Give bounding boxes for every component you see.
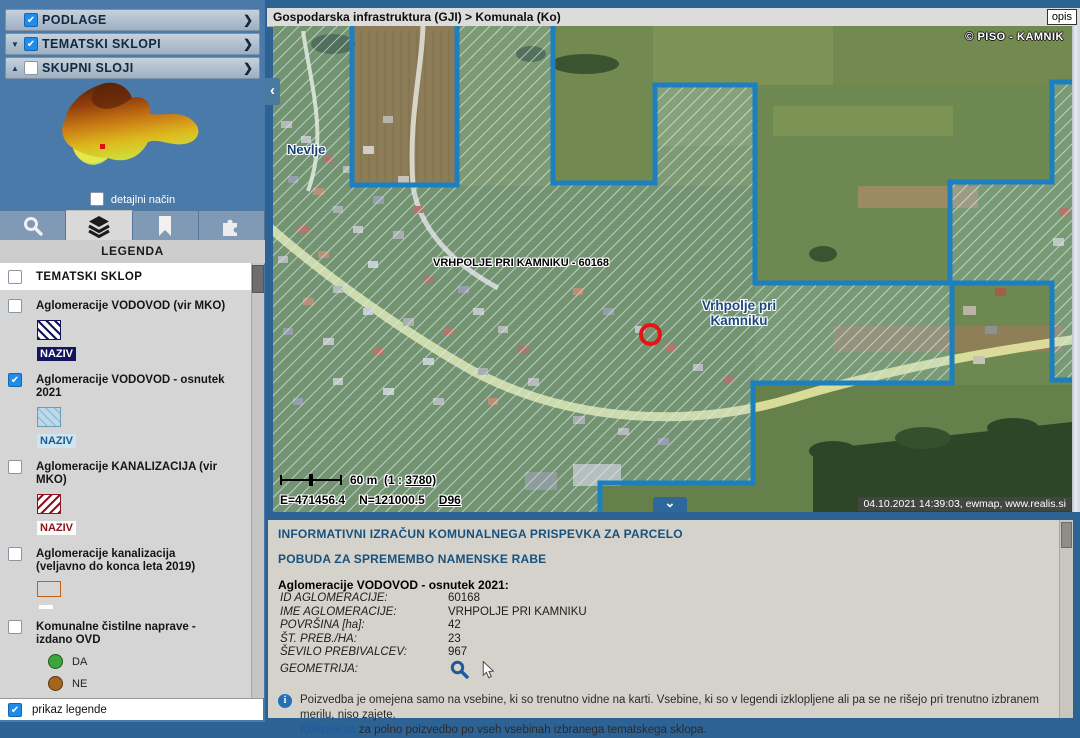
selection-marker-icon: [639, 323, 662, 346]
check-icon: ✔: [27, 15, 35, 26]
sidebar-collapse-tab[interactable]: ‹: [265, 78, 280, 105]
link-komunalni-prispevek[interactable]: INFORMATIVNI IZRAČUN KOMUNALNEGA PRISPEV…: [278, 527, 1048, 541]
tab-search[interactable]: [0, 210, 66, 240]
dot-label: DA: [72, 656, 87, 668]
check-icon: ✔: [11, 705, 19, 716]
panel-bar-podlage[interactable]: ✔ PODLAGE ❯: [5, 9, 260, 31]
chevron-right-icon: ❯: [243, 13, 253, 27]
tool-tabs: [0, 210, 265, 240]
field-label: GEOMETRIJA:: [278, 663, 450, 677]
legend-item-kanalizacija-2019: Aglomeracije kanalizacija (veljavno do k…: [0, 538, 251, 611]
field-row-geometry: GEOMETRIJA:: [278, 660, 1048, 680]
collapse-triangle-icon[interactable]: ▲: [6, 64, 24, 73]
naziv-badge: NAZIV: [37, 521, 76, 535]
chevron-down-icon: ⌄: [665, 495, 676, 510]
panel-bar-label: TEMATSKI SKLOPI: [42, 37, 243, 51]
tematski-checkbox[interactable]: ✔: [24, 37, 38, 51]
field-row: ŠEVILO PREBIVALCEV:967: [278, 646, 1048, 660]
legend-items: Aglomeracije VODOVOD (vir MKO) NAZIV ✔ A…: [0, 290, 251, 698]
note-tail: za polno poizvedbo po vseh vsebinah izbr…: [356, 724, 707, 736]
panel-collapse-tab[interactable]: ⌄: [653, 497, 687, 512]
chevron-right-icon: ❯: [243, 37, 253, 51]
tab-tools[interactable]: [199, 210, 265, 240]
field-row: ID AGLOMERACIJE:60168: [278, 592, 1048, 606]
item-checkbox[interactable]: [8, 547, 22, 561]
show-legend-checkbox[interactable]: ✔: [8, 703, 22, 717]
bookmark-icon: [155, 215, 175, 237]
group-label: TEMATSKI SKLOP: [36, 271, 142, 283]
place-line1: Vrhpolje pri: [679, 298, 799, 313]
place-line2: Kamniku: [679, 313, 799, 328]
overview-marker: [100, 144, 105, 149]
coordinate-readout: E=471456.4N=121000.5D96: [280, 493, 475, 507]
field-row: ŠT. PREB./HA:23: [278, 633, 1048, 647]
overview-map[interactable]: [40, 78, 225, 190]
field-value: 967: [448, 646, 467, 658]
item-label: Komunalne čistilne naprave - izdano OVD: [36, 620, 226, 647]
lightblue-swatch: [37, 407, 61, 427]
field-value: VRHPOLJE PRI KAMNIKU: [448, 606, 587, 618]
field-label: ŠEVILO PREBIVALCEV:: [278, 646, 448, 660]
map-label-nevlje: Nevlje: [287, 142, 325, 157]
legend-footer: ✔ prikaz legende: [0, 698, 263, 720]
legend-scrollbar-track[interactable]: [251, 263, 264, 698]
white-dash-swatch: [39, 605, 53, 609]
status-ne-row: NE: [39, 676, 245, 691]
field-row: POVRŠINA [ha]:42: [278, 619, 1048, 633]
item-checkbox[interactable]: [8, 460, 22, 474]
tab-layers[interactable]: [66, 210, 132, 240]
results-panel: INFORMATIVNI IZRAČUN KOMUNALNEGA PRISPEV…: [268, 520, 1072, 718]
breadcrumb: Gospodarska infrastruktura (GJI) > Komun…: [273, 10, 561, 24]
coord-e: E=471456.4: [280, 493, 345, 507]
map-label-aggregation: VRHPOLJE PRI KAMNIKU - 60168: [433, 257, 609, 269]
map-header-bar: Gospodarska infrastruktura (GJI) > Komun…: [267, 8, 1080, 27]
item-checkbox[interactable]: [8, 620, 22, 634]
podlage-checkbox[interactable]: ✔: [24, 13, 38, 27]
search-icon: [22, 215, 44, 237]
panel-scrollbar-track[interactable]: [1059, 520, 1073, 718]
legend-item-vodovod-mko: Aglomeracije VODOVOD (vir MKO) NAZIV: [0, 290, 251, 364]
field-label: POVRŠINA [ha]:: [278, 619, 448, 633]
skupni-checkbox[interactable]: [24, 61, 38, 75]
legend-item-kanalizacija-mko: Aglomeracije KANALIZACIJA (vir MKO) NAZI…: [0, 451, 251, 538]
note-text: Poizvedba je omejena samo na vsebine, ki…: [300, 694, 1039, 721]
note-link[interactable]: Kliknite tu: [300, 724, 356, 736]
item-label: Aglomeracije VODOVOD - osnutek 2021: [36, 373, 226, 400]
tab-bookmarks[interactable]: [133, 210, 199, 240]
field-label: ID AGLOMERACIJE:: [278, 592, 448, 606]
layers-icon: [87, 214, 111, 238]
item-label: Aglomeracije VODOVOD (vir MKO): [36, 299, 226, 313]
field-label: IME AGLOMERACIJE:: [278, 606, 448, 620]
sidebar: ✔ PODLAGE ❯ ▼ ✔ TEMATSKI SKLOPI ❯ ▲ SKUP…: [0, 0, 265, 722]
detail-mode-label: detajlni način: [111, 194, 175, 206]
result-section-title: Aglomeracije VODOVOD - osnutek 2021:: [278, 578, 1048, 592]
panel-bar-label: PODLAGE: [42, 13, 243, 27]
coord-datum[interactable]: D96: [439, 493, 461, 507]
scalebar: 60 m (1 : 3780): [280, 472, 580, 488]
detail-mode-checkbox[interactable]: [90, 192, 104, 206]
field-value: 60168: [448, 592, 480, 604]
opis-button[interactable]: opis: [1047, 9, 1077, 25]
legend-title: LEGENDA: [0, 240, 265, 264]
panel-bar-skupni-sloji[interactable]: ▲ SKUPNI SLOJI ❯: [5, 57, 260, 79]
legend-item-cistilne-naprave: Komunalne čistilne naprave - izdano OVD …: [0, 611, 251, 698]
puzzle-icon: [220, 215, 242, 237]
orange-crosshatch-swatch: [37, 581, 61, 597]
map-copyright: © PISO - KAMNIK: [965, 31, 1064, 43]
brown-dot-icon: [48, 676, 63, 691]
geometry-zoom-icon[interactable]: [450, 660, 469, 679]
chevron-left-icon: ‹: [270, 82, 275, 99]
query-note: i Poizvedba je omejena samo na vsebine, …: [278, 693, 1048, 738]
field-value: 23: [448, 633, 461, 645]
check-icon: ✔: [27, 39, 35, 50]
group-checkbox[interactable]: [8, 270, 22, 284]
item-checkbox[interactable]: [8, 299, 22, 313]
map-viewport[interactable]: Nevlje VRHPOLJE PRI KAMNIKU - 60168 Vrhp…: [273, 26, 1072, 512]
item-label: Aglomeracije KANALIZACIJA (vir MKO): [36, 460, 226, 487]
detail-mode-row: detajlni način: [0, 192, 265, 206]
panel-scrollbar-thumb[interactable]: [1061, 522, 1072, 548]
map-status-stamp: 04.10.2021 14:39:03, ewmap, www.realis.s…: [858, 497, 1071, 511]
coord-n: N=121000.5: [359, 493, 425, 507]
scale-ratio-pre: (1 :: [384, 473, 405, 487]
legend-group-row[interactable]: TEMATSKI SKLOP: [0, 263, 251, 291]
status-da-row: DA: [39, 654, 245, 669]
check-icon: ✔: [11, 375, 19, 386]
panel-bar-label: SKUPNI SLOJI: [42, 61, 243, 75]
legend-item-vodovod-osnutek: ✔ Aglomeracije VODOVOD - osnutek 2021 NA…: [0, 364, 251, 451]
link-pobuda[interactable]: POBUDA ZA SPREMEMBO NAMENSKE RABE: [278, 552, 1048, 566]
dot-label: NE: [72, 678, 87, 690]
scale-distance: 60 m: [350, 473, 377, 487]
show-legend-label: prikaz legende: [32, 704, 107, 716]
panel-bar-tematski-sklopi[interactable]: ▼ ✔ TEMATSKI SKLOPI ❯: [5, 33, 260, 55]
mouse-cursor-icon: [481, 661, 495, 679]
scale-ratio-post: ): [432, 473, 436, 487]
red-hatch-swatch: [37, 494, 61, 514]
green-dot-icon: [48, 654, 63, 669]
field-label: ŠT. PREB./HA:: [278, 633, 448, 647]
navy-hatch-swatch: [37, 320, 61, 340]
naziv-badge: NAZIV: [37, 434, 76, 448]
naziv-badge: NAZIV: [37, 347, 76, 361]
field-value: 42: [448, 619, 461, 631]
item-label: Aglomeracije kanalizacija (veljavno do k…: [36, 547, 226, 574]
terrain-thumbnail: [40, 78, 225, 190]
map-scrollbar[interactable]: [1072, 26, 1080, 512]
info-icon: i: [278, 694, 292, 708]
legend-scrollbar-thumb[interactable]: [252, 265, 264, 293]
map-label-vrhpolje: Vrhpolje pri Kamniku: [679, 298, 799, 328]
item-checkbox[interactable]: ✔: [8, 373, 22, 387]
aerial-map-canvas: [273, 26, 1072, 512]
chevron-right-icon: ❯: [243, 61, 253, 75]
collapse-triangle-icon[interactable]: ▼: [6, 40, 24, 49]
scale-ratio-value[interactable]: 3780: [405, 473, 432, 487]
field-row: IME AGLOMERACIJE:VRHPOLJE PRI KAMNIKU: [278, 606, 1048, 620]
